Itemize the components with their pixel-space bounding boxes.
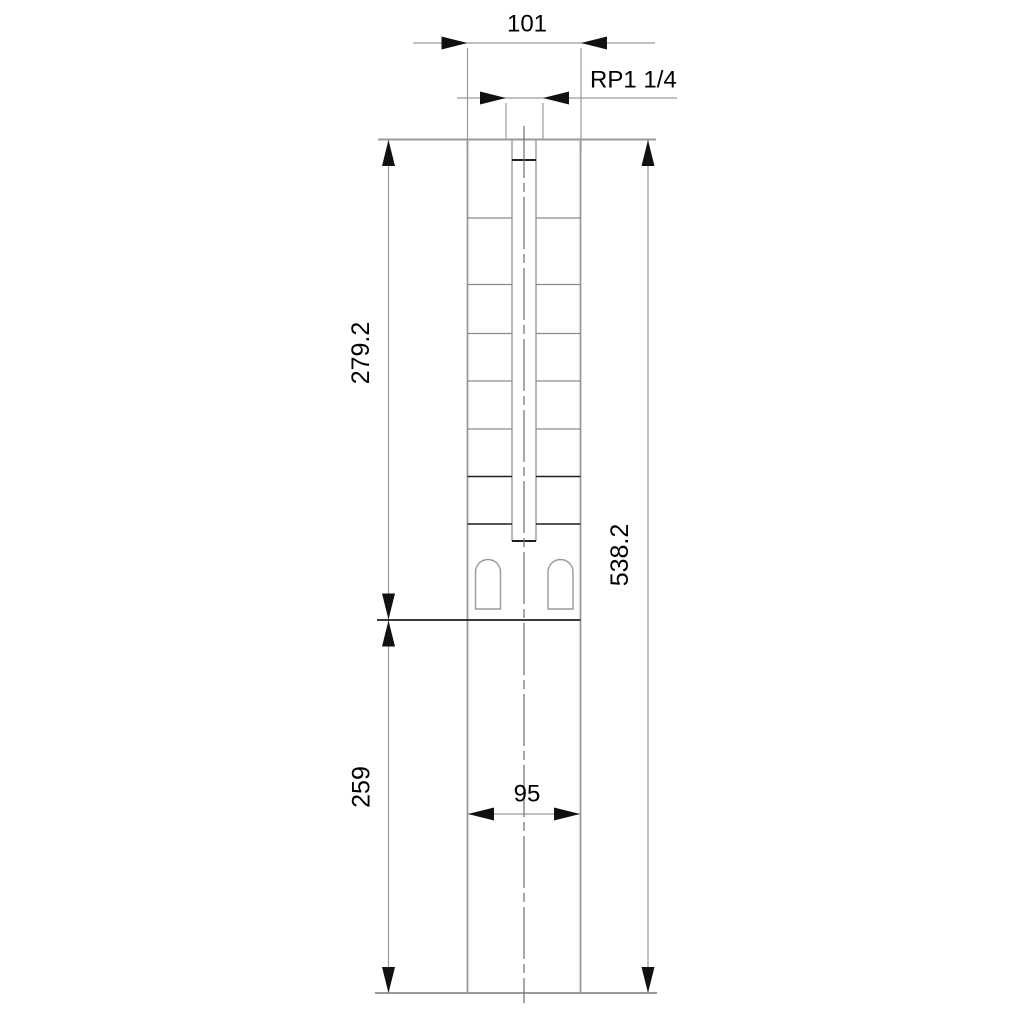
intake-slot-left xyxy=(476,560,501,610)
arrowhead-101-right xyxy=(581,37,607,50)
arrowhead-279-top xyxy=(382,140,395,166)
arrowhead-thread-left xyxy=(480,92,506,105)
dim-label-pump-length: 279.2 xyxy=(347,322,375,385)
arrowhead-95-left xyxy=(468,808,494,821)
arrowhead-538-top xyxy=(642,140,655,166)
arrowhead-538-bottom xyxy=(642,967,655,993)
dim-label-width-top: 101 xyxy=(507,11,547,38)
dim-label-total-length: 538.2 xyxy=(606,524,634,587)
outline-layer xyxy=(375,43,677,993)
arrowhead-259-bottom xyxy=(382,967,395,993)
intake-slot-right xyxy=(548,560,573,610)
pump-dimension-drawing: 101 RP1 1/4 279.2 538.2 259 95 xyxy=(0,0,1024,1024)
arrowhead-95-right xyxy=(554,808,580,821)
dim-label-thread: RP1 1/4 xyxy=(590,67,677,94)
arrowheads-layer xyxy=(382,37,655,994)
drawing-canvas: 101 RP1 1/4 279.2 538.2 259 95 xyxy=(0,0,1024,1024)
dim-label-motor-length: 259 xyxy=(348,766,376,808)
dim-label-motor-width: 95 xyxy=(514,781,541,808)
dark-lines-layer xyxy=(377,160,581,620)
arrowhead-thread-right xyxy=(543,92,569,105)
arrowhead-279-bottom xyxy=(382,594,395,620)
arrowhead-101-left xyxy=(442,37,468,50)
arrowhead-259-top xyxy=(382,621,395,647)
